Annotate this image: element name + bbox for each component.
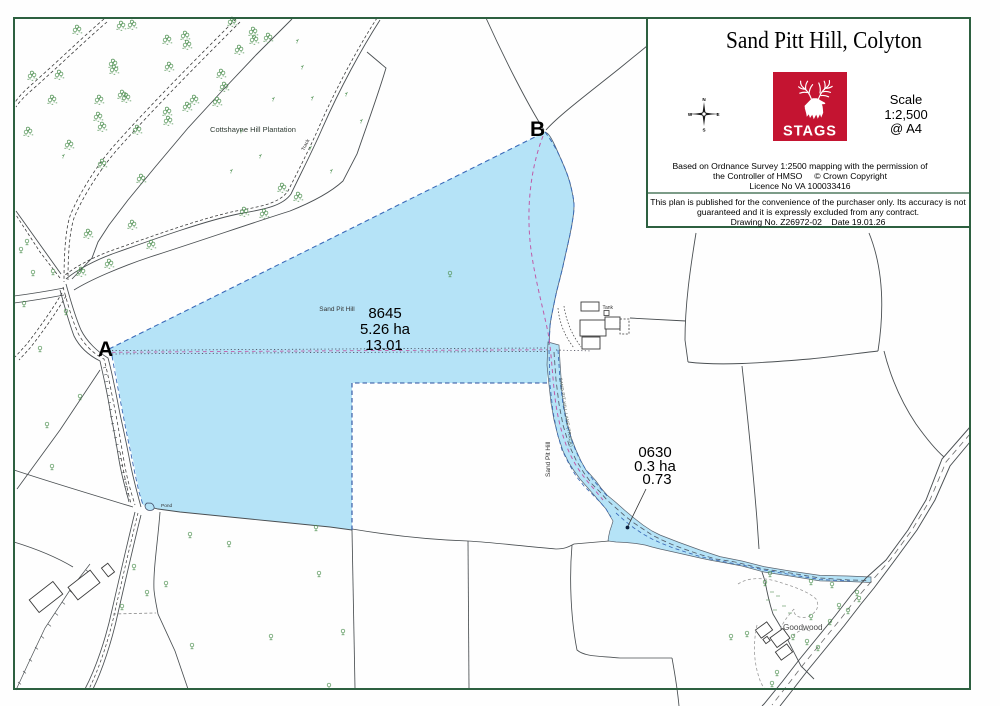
svg-text:8645: 8645 <box>368 305 401 322</box>
svg-text:Cottshayne Hill Plantation: Cottshayne Hill Plantation <box>210 125 296 134</box>
svg-text:A: A <box>98 338 113 361</box>
svg-text:Drawing No. Z26972-02 Date: Drawing No. Z26972-02 Date 19.01.26 <box>731 217 886 227</box>
svg-text:@ A4: @ A4 <box>890 121 922 136</box>
svg-text:Goodwood: Goodwood <box>783 623 823 632</box>
svg-text:0.73: 0.73 <box>642 471 671 488</box>
svg-text:5.26 ha: 5.26 ha <box>360 321 411 338</box>
svg-text:B: B <box>530 118 545 141</box>
svg-text:Tank: Tank <box>603 305 614 311</box>
svg-text:This plan is published for the: This plan is published for the convenien… <box>650 197 966 207</box>
svg-text:STAGS: STAGS <box>783 124 837 140</box>
svg-text:E: E <box>716 112 719 117</box>
svg-text:S: S <box>702 128 705 133</box>
svg-text:13.01: 13.01 <box>365 337 403 354</box>
svg-text:Sand Pitt Hill, Colyton: Sand Pitt Hill, Colyton <box>726 28 922 54</box>
svg-text:the Controller of HMSO © C: the Controller of HMSO © Crown Copyright <box>713 171 888 181</box>
svg-text:guaranteed and it is expressly: guaranteed and it is expressly excluded … <box>697 207 919 217</box>
svg-text:Sand Pit Hill: Sand Pit Hill <box>545 441 552 477</box>
svg-text:Scale: Scale <box>890 92 923 107</box>
svg-text:Based on Ordnance Survey 1:250: Based on Ordnance Survey 1:2500 mapping … <box>672 161 928 171</box>
svg-text:1:2,500: 1:2,500 <box>884 107 927 122</box>
svg-text:W: W <box>688 112 693 117</box>
svg-text:Pond: Pond <box>161 503 173 509</box>
svg-text:Sand Pit Hill: Sand Pit Hill <box>319 306 355 313</box>
svg-text:Licence No VA 100033416: Licence No VA 100033416 <box>749 181 850 191</box>
